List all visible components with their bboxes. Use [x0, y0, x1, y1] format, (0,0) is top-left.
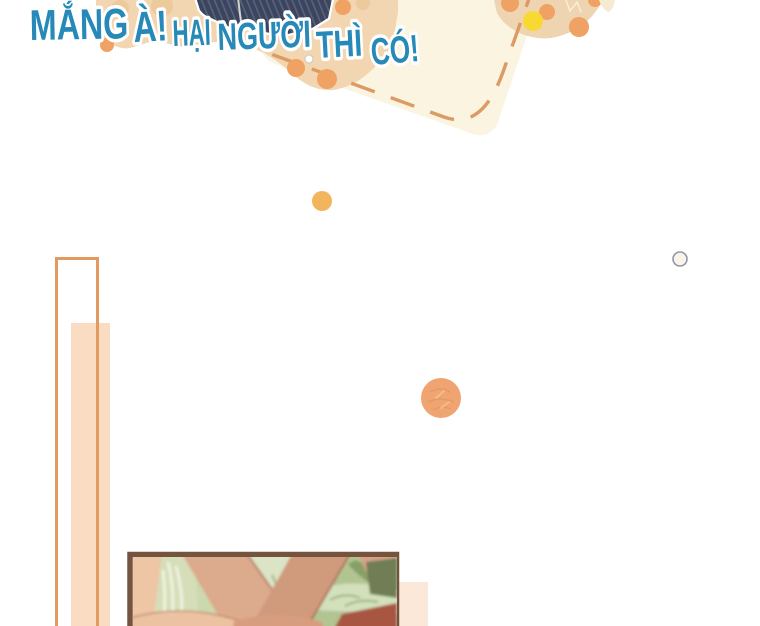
- svg-text:NGƯỜI: NGƯỜI: [217, 12, 312, 58]
- svg-text:MẮNG: MẮNG: [29, 0, 128, 50]
- svg-text:HẠI: HẠI: [172, 12, 212, 55]
- svg-text:CÓ!: CÓ!: [369, 26, 421, 73]
- svg-text:À!: À!: [132, 1, 169, 52]
- svg-text:THÌ: THÌ: [315, 22, 363, 67]
